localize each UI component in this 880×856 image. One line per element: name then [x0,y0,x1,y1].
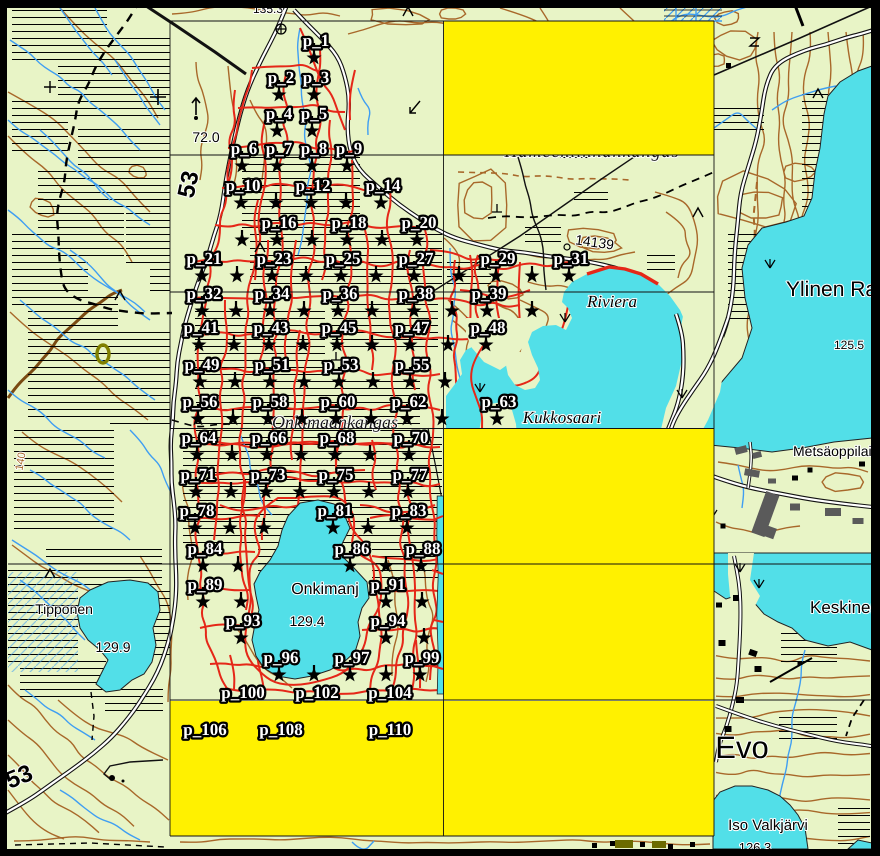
svg-text:p_62: p_62 [392,392,427,411]
svg-text:p_64: p_64 [182,428,217,447]
svg-text:p_66: p_66 [252,428,287,447]
svg-text:p_99: p_99 [405,648,440,667]
svg-text:p_1: p_1 [303,31,329,50]
svg-text:p_6: p_6 [231,139,257,158]
svg-text:p_48: p_48 [471,318,506,337]
svg-text:p_20: p_20 [402,213,437,232]
svg-text:Keskinen: Keskinen [810,598,880,617]
svg-text:Tipponen: Tipponen [35,601,93,617]
svg-text:p_12: p_12 [296,176,331,195]
svg-text:p_31: p_31 [554,249,589,268]
svg-text:p_41: p_41 [184,318,219,337]
svg-text:p_104: p_104 [368,683,412,702]
svg-text:p_3: p_3 [303,68,329,87]
svg-text:p_84: p_84 [188,539,223,558]
svg-text:p_14: p_14 [366,176,401,195]
svg-text:p_4: p_4 [266,104,293,123]
svg-text:p_81: p_81 [318,501,353,520]
svg-text:p_56: p_56 [183,392,218,411]
svg-text:p_100: p_100 [221,683,264,702]
svg-text:125.5: 125.5 [834,338,864,352]
svg-text:p_60: p_60 [321,392,356,411]
svg-text:p_78: p_78 [180,501,215,520]
svg-text:p_25: p_25 [326,249,361,268]
svg-text:p_29: p_29 [481,249,516,268]
svg-text:p_86: p_86 [335,539,370,558]
svg-text:Ylinen Rautjärvi: Ylinen Rautjärvi [786,278,880,301]
svg-text:Evo: Evo [715,730,768,765]
svg-text:p_77: p_77 [393,465,428,484]
svg-text:p_43: p_43 [254,318,289,337]
svg-text:p_7: p_7 [266,139,293,158]
svg-text:p_88: p_88 [406,539,441,558]
svg-text:p_39: p_39 [472,284,507,303]
svg-text:p_110: p_110 [369,720,412,739]
svg-text:p_49: p_49 [185,355,220,374]
svg-text:72.0: 72.0 [192,129,219,145]
svg-text:p_94: p_94 [371,611,406,630]
svg-text:p_16: p_16 [262,213,297,232]
svg-text:p_23: p_23 [257,249,292,268]
svg-text:p_96: p_96 [264,648,299,667]
svg-text:p_75: p_75 [319,465,354,484]
svg-text:p_97: p_97 [335,648,370,667]
svg-text:p_89: p_89 [188,575,223,594]
svg-text:p_58: p_58 [253,392,288,411]
svg-text:53: 53 [173,169,205,201]
svg-text:p_5: p_5 [301,104,327,123]
svg-text:p_108: p_108 [259,720,302,739]
svg-text:p_102: p_102 [295,683,338,702]
svg-text:p_32: p_32 [187,284,222,303]
svg-text:Onkimanj: Onkimanj [291,581,359,598]
svg-text:129.4: 129.4 [289,613,324,629]
svg-text:p_34: p_34 [255,284,290,303]
svg-text:p_27: p_27 [399,249,434,268]
svg-text:p_10: p_10 [226,176,261,195]
svg-text:p_70: p_70 [394,428,429,447]
svg-text:Iso Valkjärvi: Iso Valkjärvi [728,817,808,834]
svg-text:p_55: p_55 [395,355,430,374]
svg-text:Riviera: Riviera [586,292,637,311]
svg-text:p_63: p_63 [482,392,517,411]
svg-text:Metsäoppilaitos: Metsäoppilaitos [793,443,880,459]
svg-text:p_71: p_71 [181,465,216,484]
svg-text:p_2: p_2 [268,68,294,87]
svg-text:p_53: p_53 [324,355,359,374]
svg-text:p_106: p_106 [183,720,226,739]
svg-text:p_91: p_91 [371,575,406,594]
svg-text:p_8: p_8 [301,139,327,158]
svg-text:129.9: 129.9 [95,639,130,655]
svg-text:p_9: p_9 [336,139,362,158]
svg-text:p_68: p_68 [320,428,355,447]
svg-text:p_83: p_83 [392,501,427,520]
svg-text:p_38: p_38 [399,284,434,303]
svg-text:p_73: p_73 [251,465,286,484]
svg-text:p_36: p_36 [323,284,358,303]
svg-text:p_18: p_18 [332,213,367,232]
svg-text:Kukkosaari: Kukkosaari [522,408,602,427]
svg-text:p_93: p_93 [226,611,261,630]
svg-text:p_51: p_51 [255,355,290,374]
svg-text:p_47: p_47 [395,318,430,337]
svg-text:p_21: p_21 [187,249,222,268]
svg-text:p_45: p_45 [322,318,357,337]
